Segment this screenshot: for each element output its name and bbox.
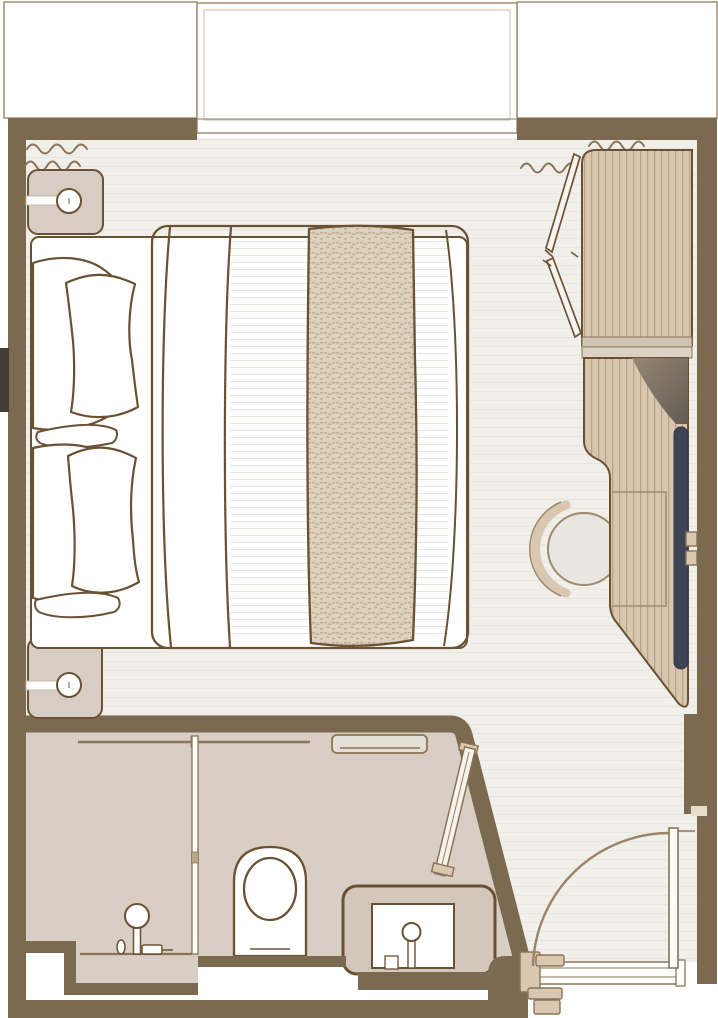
wall-right-pilaster	[684, 714, 697, 814]
wall-top-right	[517, 118, 717, 140]
wall-top-left	[8, 118, 197, 140]
lamp-arm	[26, 196, 60, 205]
wall-left	[8, 118, 26, 1018]
balcony-right	[517, 2, 717, 118]
vanity-bottom-wall	[358, 972, 492, 990]
shower-glass-partition	[192, 736, 198, 954]
shower-handle	[117, 940, 125, 954]
shower-pocket-wall	[64, 941, 76, 989]
wall-seam	[691, 806, 707, 816]
wall-bracket	[686, 551, 697, 565]
wardrobe-shelf-band	[582, 337, 692, 347]
vanity-sink	[343, 886, 495, 974]
floor-plan	[0, 0, 718, 1018]
wall-notch	[0, 348, 9, 412]
faucet-stem	[408, 938, 415, 968]
tv-panel	[674, 427, 688, 669]
pillow-seam-bottom	[35, 593, 120, 617]
shower-pocket-bottom-wall	[64, 983, 198, 995]
balcony-left	[4, 2, 197, 118]
soap-holder	[385, 956, 398, 969]
faucet	[403, 923, 421, 941]
partition-joint	[192, 852, 199, 863]
door-leaf	[669, 828, 678, 968]
balcony	[4, 2, 717, 133]
shower-valve-stem	[134, 927, 141, 954]
wall-bracket	[686, 532, 697, 546]
nightstand-bottom	[26, 638, 102, 718]
knit-throw	[307, 226, 416, 646]
pillow-front-bottom	[68, 448, 139, 593]
nightstand-top	[26, 170, 103, 234]
soap-dish	[142, 945, 162, 954]
floor-plan-drawing	[0, 0, 718, 1018]
shower-control-knob	[125, 904, 149, 928]
towel-shelf	[332, 735, 427, 753]
wardrobe-body	[582, 150, 692, 345]
bathroom	[24, 718, 528, 1018]
bathroom-wall-segment	[24, 941, 68, 953]
pillow-front-top	[66, 275, 138, 417]
balcony-window	[197, 3, 517, 133]
lamp-arm	[26, 681, 60, 690]
wall-bottom	[8, 1000, 502, 1018]
double-bed	[31, 226, 468, 648]
wall-right	[697, 138, 717, 984]
toilet-zone-wall	[198, 956, 346, 967]
toilet	[234, 847, 306, 956]
wardrobe-shelf-band-lower	[582, 347, 692, 358]
